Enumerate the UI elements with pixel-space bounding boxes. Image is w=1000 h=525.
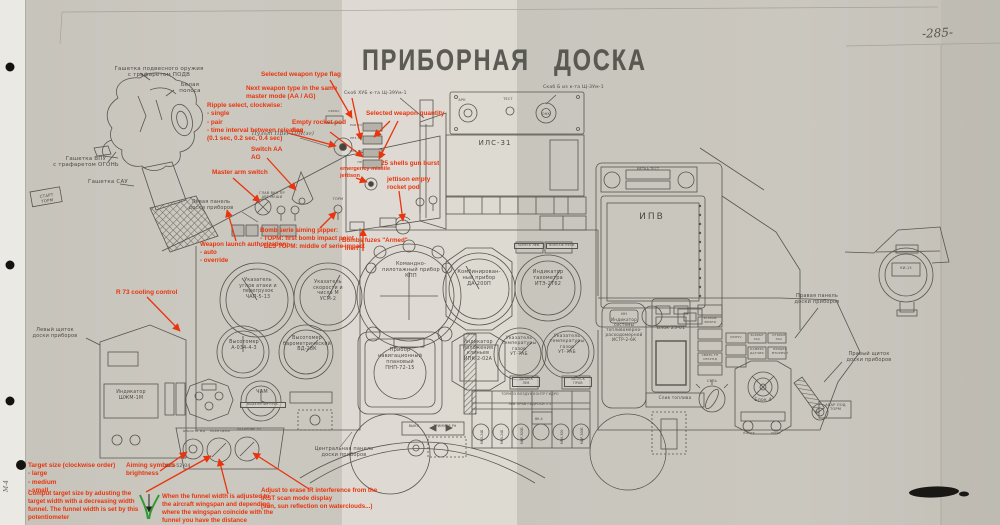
label-kpp: Командно- пилотажный прибор КПП	[377, 262, 445, 280]
annotation-weapon-type-flag: Selected weapon type flag	[261, 71, 373, 79]
label-istr: Индикатор системы топливомерно- расходом…	[603, 318, 645, 343]
annotation-weapon-quantity: Selected weapon quantity	[366, 110, 480, 118]
torm-switch	[334, 205, 342, 213]
label-izluch: ИЗЛУЧ	[724, 336, 748, 340]
annotation-bombs-fuzes: Bombs fuzes "Armed" "Inert"	[342, 237, 408, 253]
gauge-tag: МВ0-24Б	[500, 430, 504, 444]
annunciator-row	[446, 197, 586, 214]
label-altimeter-1: Высотомер А-034-4-3	[221, 340, 267, 351]
binder-holes	[6, 63, 27, 471]
emergency-brake-handle	[794, 377, 828, 420]
annotation-aiming-brightness: Aiming symbols brightness	[126, 462, 186, 479]
page-title: ПРИБОРНАЯ ДОСКА	[362, 44, 647, 78]
label-set: СЕТЬ	[700, 379, 724, 383]
gauge-tag: ВК-4	[535, 417, 543, 421]
label-metka-test: МЕТКА ТЕСТ	[618, 168, 678, 172]
label-trimmer: ТРИММЕР РН	[426, 425, 464, 429]
label-aoa: Указатель углов атаки и перегрузок ЧАП-5…	[230, 278, 286, 301]
pnp-hsi	[358, 332, 442, 414]
switch-cluster	[185, 379, 233, 421]
margin-note: М-4	[3, 480, 10, 492]
label-gun-trigger: Гашетка ВПУ с трафаретом ОГОНЬ	[44, 156, 128, 169]
annotation-jettison-pod: jettison empty rocket pod	[387, 176, 453, 193]
label-zapusk-lev: ЗАПУСК ЛЕВ	[512, 377, 540, 387]
annotation-master-arm: Master arm switch	[212, 169, 298, 177]
annotation-comput-target: Comput target size by adusting the targe…	[28, 490, 156, 522]
annotation-next-weapon-type: Next weapon type in the same master mode…	[246, 85, 366, 102]
label-right-shield: Правый щиток доски приборов	[838, 352, 900, 364]
label-left-panel: Левая панель доски приборов	[180, 200, 242, 212]
label-hud-kit-right: Скаб Б из к-та Щ-3Ум-1	[543, 85, 629, 90]
label-fuel-drain: Слив топлива	[648, 396, 702, 401]
ink-blob	[909, 486, 969, 499]
label-central-panel: Центральная панель доски приборов	[306, 447, 382, 459]
label-pnp: Прибор навигационный плановый ПНП-72-15	[368, 348, 432, 372]
label-zaprav: ЗАПРАВ ЗЕМЛЯ	[696, 317, 724, 324]
label-hud: ИЛС-31	[470, 139, 520, 147]
annotation-gun-burst: 25 shells gun burst	[381, 160, 473, 168]
label-stick-weapon-trigger: Гашетка подвесного оружия с трафаретом П…	[84, 66, 234, 79]
label-gauge-table-row2: ЛЕВ ПРАВ ГИДРОСИ 1 2	[474, 403, 586, 407]
label-da200: Комбинирован- ный прибор ДА-200П	[449, 270, 509, 288]
label-avar-tag: АВАР ПОД ТОРМ	[821, 403, 850, 411]
label-onk: ОНК	[536, 112, 556, 116]
label-master-arm: ГЛАВ ВКЛ ПР АВТ МЕШИ	[248, 191, 296, 199]
gauge-tag: МДР-300Б	[580, 427, 584, 444]
label-kamera: КАМЕРА ДАТЧИК	[746, 348, 768, 355]
label-window-4: НР	[345, 161, 362, 165]
standby-compass	[845, 227, 949, 316]
label-ki13-compass: КИ-13	[892, 266, 920, 270]
label-pricel: ПРИЦЕЛ ВТОРИЧН	[768, 348, 792, 355]
set-knob	[699, 386, 725, 412]
label-forsazh-lev: ЗАПУСК ЛЕВ.	[514, 243, 544, 249]
label-altimeter-2: Высотомер барометрический ВД-28К	[280, 336, 334, 353]
label-blok4: Блок 4	[748, 398, 778, 403]
annotation-launch-auth: Weapon launch authorization: - auto - ov…	[200, 241, 304, 265]
scanned-diagram-page: МВ0-24Б МВ0-24Б МДР-300Б ВК-4 МП0-300 МД…	[0, 0, 1000, 525]
annotation-r73-cooling: R 73 cooling control	[116, 289, 208, 297]
combiner-glass	[420, 113, 446, 229]
annotation-ir-adjust: Adjust to erase IR interference from the…	[261, 487, 403, 511]
target-size-bullet	[16, 460, 26, 470]
label-otkryt: ОТКРЫТ ЗАС	[768, 334, 790, 341]
label-torm: ТОРМ	[330, 197, 346, 201]
label-kontr: КОНТР	[738, 432, 760, 436]
pod-jettison-button	[396, 220, 410, 234]
label-window-3: ОСТ ЗЧ	[345, 150, 362, 154]
page-number: -285-	[922, 25, 954, 41]
label-left-shield: Левый щиток доски приборов	[24, 328, 86, 340]
label-zapusk-prav: ЗАПУСК ПРАВ	[564, 377, 592, 387]
annotation-empty-rocket-pod: Empty rocket pod flag	[292, 119, 366, 136]
label-in-button: ИН	[614, 312, 634, 316]
annotation-switch-aa-ag: Switch AA AG	[251, 146, 301, 163]
label-speed: Указатель скорости и числа М УСМ-2	[303, 280, 353, 303]
label-white-stripe: Белая полоса	[172, 82, 208, 95]
label-clock-sub: ВЫДЕЛЕНИЕ ГРУБ.	[240, 402, 286, 408]
label-ark: АРК	[452, 98, 472, 102]
aa-ag-switch	[277, 206, 285, 214]
label-ipv: ИПВ	[630, 212, 674, 223]
label-knob-distance: УДАЛЕНИЕ ТП	[232, 428, 266, 432]
label-egt-1: Указатель температуры газов УТ-7АБ	[496, 336, 542, 358]
label-forsazh-prav: ФОРСАЖ ПРАВ.	[546, 243, 578, 249]
label-test: ТЕСТ	[498, 97, 518, 101]
label-tachometer: Индикатор тахометра ИТЭ-2Т62	[520, 270, 576, 288]
label-svyaz-tp: СВЯЗЬ ТП СЕКУНД	[696, 354, 724, 361]
gauge-tag: МДР-300Б	[520, 427, 524, 444]
label-zakryt: ЗАКРЫТ ЗАС	[746, 334, 768, 341]
label-clock: ЧАМ	[248, 390, 276, 396]
label-shzm: Индикатор ШЖМ-1М	[106, 390, 156, 401]
label-egt-2: Указатель температуры газов УТ-7АБ	[544, 334, 590, 356]
label-right-panel: Правая панель доски приборов	[786, 294, 848, 306]
label-blok23: Блок 23-01	[650, 326, 692, 331]
label-sau-trigger: Гашетка САУ	[78, 179, 138, 185]
label-vykl: ВЫКЛ	[404, 425, 424, 429]
label-noch: НОЧЬ	[766, 432, 786, 436]
label-gauge-table-row1: ТОРМОЗ ВОЗДУХ КОНТР ГИДРО	[474, 393, 586, 397]
gauge-tag: МП0-300	[560, 430, 564, 444]
label-window-2: РЕЗ ЗЧ	[345, 137, 362, 141]
gauge-tag: МВ0-24Б	[480, 430, 484, 444]
